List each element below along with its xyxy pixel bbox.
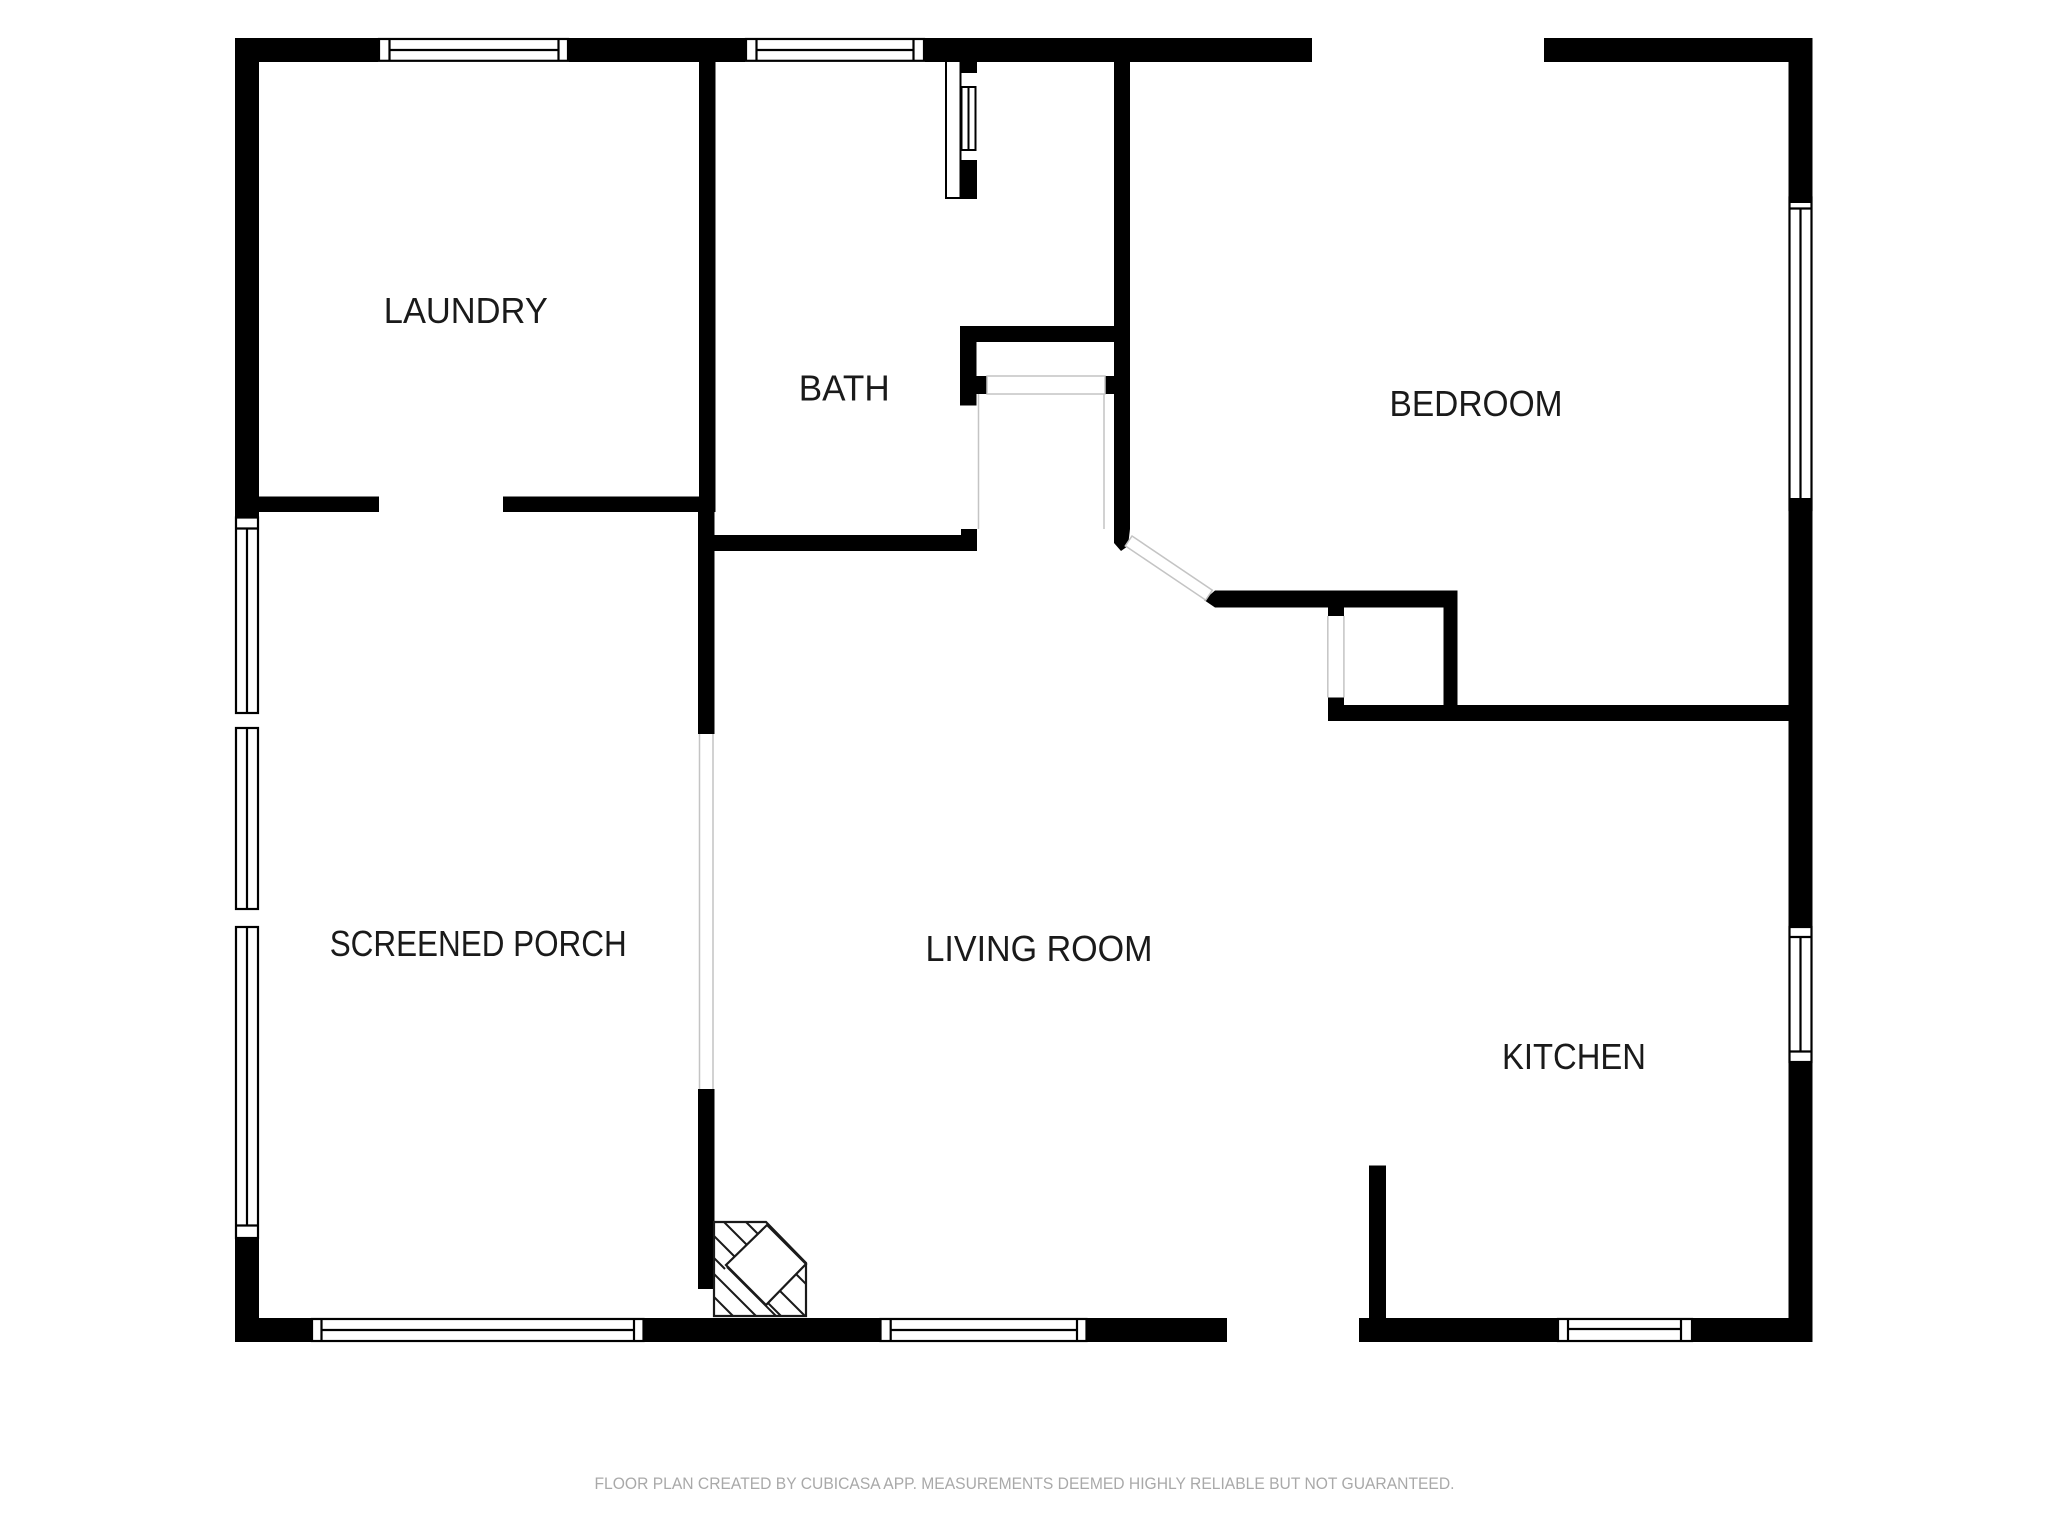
svg-text:LAUNDRY: LAUNDRY bbox=[384, 290, 548, 331]
svg-text:BATH: BATH bbox=[799, 368, 890, 409]
svg-text:LIVING ROOM: LIVING ROOM bbox=[926, 928, 1153, 969]
svg-text:SCREENED PORCH: SCREENED PORCH bbox=[330, 923, 627, 964]
svg-text:BEDROOM: BEDROOM bbox=[1390, 383, 1563, 424]
svg-text:FLOOR PLAN CREATED BY CUBICASA: FLOOR PLAN CREATED BY CUBICASA APP. MEAS… bbox=[595, 1474, 1455, 1493]
svg-text:KITCHEN: KITCHEN bbox=[1502, 1036, 1646, 1077]
